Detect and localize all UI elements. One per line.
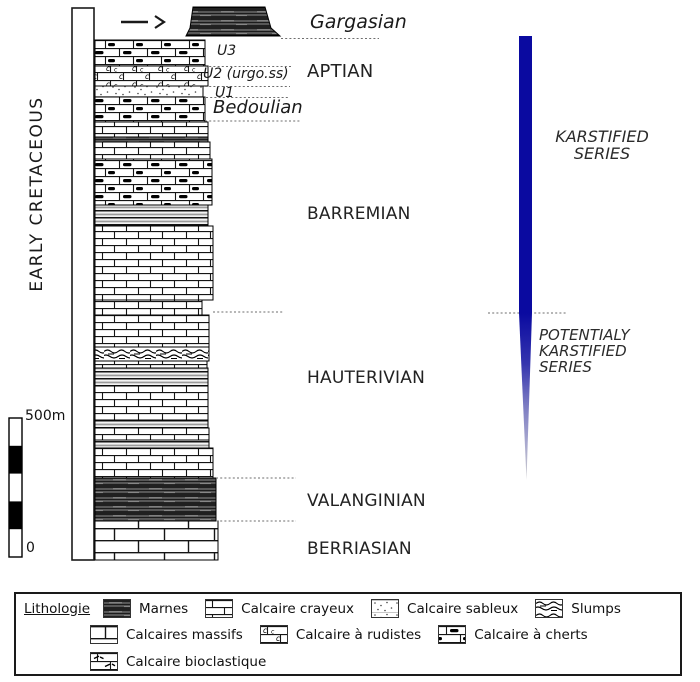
legend-row-1: Lithologie Marnes Calcaire crayeux Calca… bbox=[24, 599, 629, 618]
legend-item-label: Calcaire à rudistes bbox=[296, 627, 421, 643]
calcaires-massifs-swatch-icon bbox=[90, 625, 118, 644]
legend-item-label: Slumps bbox=[571, 601, 621, 617]
calcaire-sableux-swatch-icon bbox=[371, 599, 399, 618]
flow-arrow-icon bbox=[121, 16, 164, 28]
band-marl-thin bbox=[95, 137, 208, 142]
legend-item-slumps: Slumps bbox=[535, 599, 621, 618]
gargasian-marl-block bbox=[186, 7, 280, 36]
label-potentially-karstified-series: POTENTIALY KARSTIFIED SERIES bbox=[539, 327, 630, 376]
band-brick bbox=[95, 386, 208, 420]
label-bedoulian: Bedoulian bbox=[213, 98, 303, 117]
band-u3-cherts bbox=[95, 40, 205, 66]
scale-bar bbox=[9, 418, 22, 557]
karstified-bar bbox=[519, 36, 532, 313]
legend-item-calcaires-massifs: Calcaires massifs bbox=[90, 625, 243, 644]
legend-item-label: Calcaire bioclastique bbox=[126, 654, 266, 670]
band-lined bbox=[95, 440, 209, 448]
legend-title: Lithologie bbox=[24, 601, 90, 617]
legend-row-2: Calcaires massifs Calcaire à rudistes Ca… bbox=[90, 625, 596, 644]
label-u2: U2 (urgo.ss) bbox=[203, 67, 289, 82]
legend-item-label: Calcaire crayeux bbox=[241, 601, 354, 617]
section-frame bbox=[72, 8, 94, 560]
label-karstified-series: KARSTIFIED SERIES bbox=[540, 128, 664, 163]
strat-column bbox=[95, 40, 218, 560]
label-berriasian: BERRIASIAN bbox=[307, 540, 412, 558]
stratigraphic-log-figure: c c c bbox=[0, 0, 700, 682]
potentially-karstified-taper bbox=[519, 313, 532, 480]
calcaire-a-rudistes-swatch-icon bbox=[260, 625, 288, 644]
band-slumps bbox=[95, 347, 209, 361]
calcaire-crayeux-swatch-icon bbox=[205, 599, 233, 618]
band-barremian-cherts bbox=[95, 159, 212, 205]
label-gargasian: Gargasian bbox=[310, 12, 407, 33]
band-bedoulian-cherts bbox=[95, 97, 205, 122]
band-lined bbox=[95, 420, 208, 428]
scale-top-label: 500m bbox=[25, 409, 65, 424]
label-hauterivian: HAUTERIVIAN bbox=[307, 369, 425, 387]
band-lined bbox=[95, 368, 208, 386]
label-aptian: APTIAN bbox=[307, 62, 373, 81]
calcaire-a-cherts-swatch-icon bbox=[438, 625, 466, 644]
calcaire-bioclastique-swatch-icon bbox=[90, 652, 118, 671]
band-berriasian-massif bbox=[95, 521, 218, 560]
legend-item-label: Calcaire à cherts bbox=[474, 627, 587, 643]
lithology-legend: Lithologie Marnes Calcaire crayeux Calca… bbox=[14, 592, 682, 676]
legend-item-calcaire-a-rudistes: Calcaire à rudistes bbox=[260, 625, 421, 644]
band-brick bbox=[95, 428, 209, 440]
legend-item-calcaire-sableux: Calcaire sableux bbox=[371, 599, 518, 618]
legend-item-calcaire-a-cherts: Calcaire à cherts bbox=[438, 625, 587, 644]
band-brick bbox=[95, 448, 213, 478]
legend-item-label: Calcaires massifs bbox=[126, 627, 243, 643]
legend-item-marnes: Marnes bbox=[103, 599, 188, 618]
legend-item-label: Calcaire sableux bbox=[407, 601, 518, 617]
label-u3: U3 bbox=[217, 44, 236, 59]
band-brick bbox=[95, 122, 208, 137]
legend-item-calcaire-bioclastique: Calcaire bioclastique bbox=[90, 652, 266, 671]
band-brick bbox=[95, 226, 213, 300]
legend-item-label: Marnes bbox=[139, 601, 188, 617]
legend-item-calcaire-crayeux: Calcaire crayeux bbox=[205, 599, 354, 618]
band-u1-sableux bbox=[95, 86, 203, 97]
slumps-swatch-icon bbox=[535, 599, 563, 618]
band-brick bbox=[95, 142, 210, 159]
legend-row-3: Calcaire bioclastique bbox=[90, 652, 274, 671]
band-brick-notch bbox=[95, 300, 202, 315]
label-valanginian: VALANGINIAN bbox=[307, 492, 426, 510]
band-u2-rudistes bbox=[95, 66, 208, 86]
band-valanginian-marl bbox=[95, 478, 216, 521]
band-lined bbox=[95, 205, 208, 226]
label-barremian: BARREMIAN bbox=[307, 205, 411, 223]
band-brick bbox=[95, 315, 209, 347]
band-brick bbox=[95, 361, 207, 368]
period-label: EARLY CRETACEOUS bbox=[27, 91, 47, 297]
marnes-swatch-icon bbox=[103, 599, 131, 618]
scale-bottom-label: 0 bbox=[26, 541, 35, 556]
